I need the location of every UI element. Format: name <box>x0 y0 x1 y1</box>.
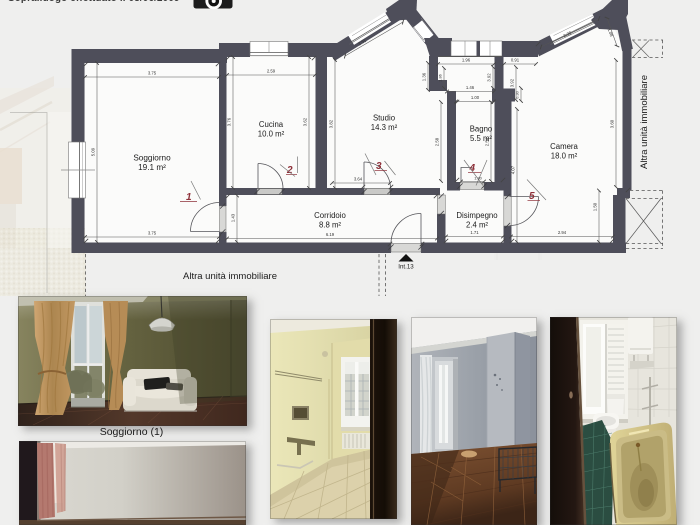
svg-text:Disimpegno: Disimpegno <box>456 211 498 220</box>
svg-text:Soggiorno: Soggiorno <box>133 154 171 163</box>
svg-text:3.82: 3.82 <box>329 119 334 128</box>
svg-text:1.86: 1.86 <box>438 74 443 82</box>
svg-text:3.64: 3.64 <box>354 177 363 182</box>
svg-text:19.1 m²: 19.1 m² <box>138 163 166 172</box>
svg-text:3.92: 3.92 <box>510 78 515 87</box>
svg-text:Studio: Studio <box>373 114 396 123</box>
svg-text:18.0 m²: 18.0 m² <box>551 152 578 161</box>
svg-text:0.91: 0.91 <box>511 58 520 63</box>
svg-text:5.5 m²: 5.5 m² <box>470 134 492 143</box>
svg-text:1.36: 1.36 <box>422 72 427 81</box>
svg-text:0.30: 0.30 <box>515 90 520 98</box>
svg-text:Int.13: Int.13 <box>398 264 414 271</box>
svg-text:2.4 m²: 2.4 m² <box>466 221 488 230</box>
svg-text:2.59: 2.59 <box>267 69 276 74</box>
svg-text:3.75: 3.75 <box>148 231 157 236</box>
svg-text:2.94: 2.94 <box>558 230 567 235</box>
svg-text:1.50: 1.50 <box>593 202 598 211</box>
svg-text:1.43: 1.43 <box>231 213 236 222</box>
svg-text:Altra unità immobiliare: Altra unità immobiliare <box>639 75 650 169</box>
svg-text:1.00: 1.00 <box>471 95 480 100</box>
svg-text:2.58: 2.58 <box>435 137 440 146</box>
svg-text:3.75: 3.75 <box>148 71 157 76</box>
svg-text:Bagno: Bagno <box>470 125 493 134</box>
svg-text:1.71: 1.71 <box>470 230 479 235</box>
svg-text:3.76: 3.76 <box>227 117 232 126</box>
svg-text:5.09: 5.09 <box>91 147 96 156</box>
svg-text:1.30: 1.30 <box>474 176 482 181</box>
svg-text:10.0 m²: 10.0 m² <box>258 130 285 139</box>
svg-text:4.07: 4.07 <box>511 165 516 174</box>
svg-text:Corridoio: Corridoio <box>314 211 346 220</box>
svg-text:Camera: Camera <box>550 142 578 151</box>
svg-text:6.19: 6.19 <box>326 232 335 237</box>
svg-text:8.8 m²: 8.8 m² <box>319 221 341 230</box>
svg-text:1.96: 1.96 <box>462 58 471 63</box>
svg-text:Cucina: Cucina <box>259 120 284 129</box>
svg-text:14.3 m²: 14.3 m² <box>371 123 398 132</box>
svg-text:3.92: 3.92 <box>487 73 492 82</box>
svg-text:3.60: 3.60 <box>610 119 615 128</box>
svg-text:Altra unità immobiliare: Altra unità immobiliare <box>183 271 277 282</box>
svg-text:3.62: 3.62 <box>303 117 308 126</box>
svg-text:1.46: 1.46 <box>466 85 475 90</box>
